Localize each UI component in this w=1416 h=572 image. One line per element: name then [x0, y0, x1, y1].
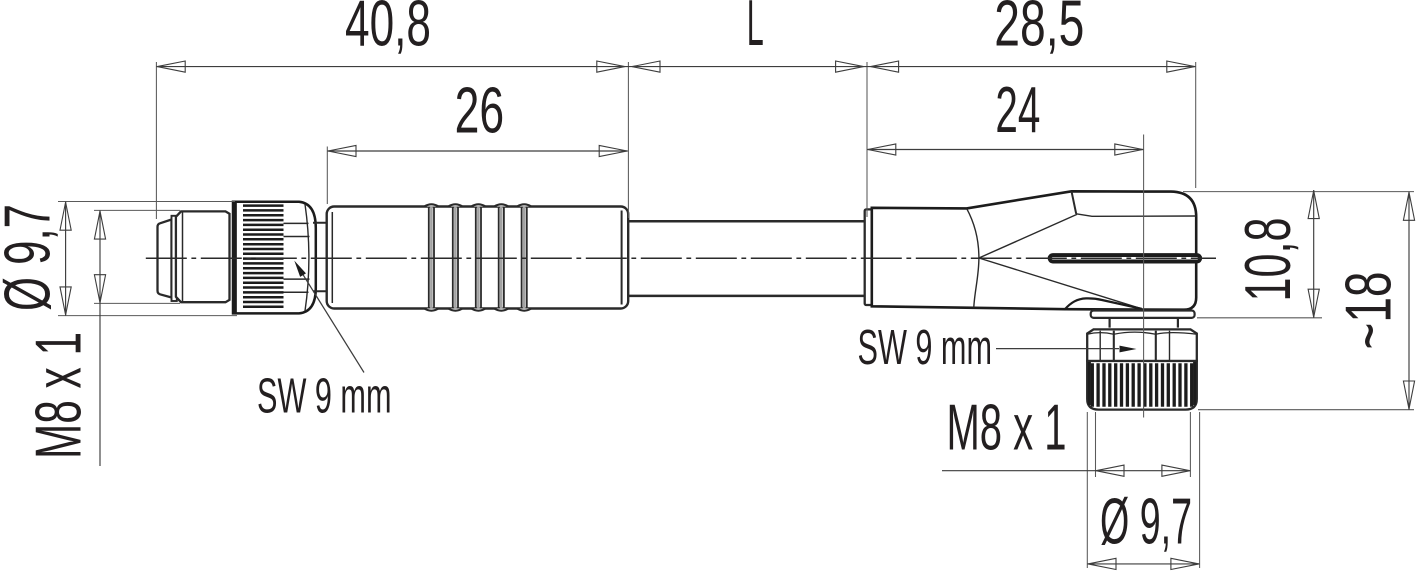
- svg-text:M8 x 1: M8 x 1: [23, 332, 95, 459]
- svg-text:40,8: 40,8: [345, 0, 431, 59]
- svg-text:24: 24: [995, 74, 1040, 146]
- svg-text:Ø 9,7: Ø 9,7: [1100, 485, 1192, 557]
- svg-text:L: L: [747, 0, 764, 59]
- svg-text:28,5: 28,5: [994, 0, 1084, 59]
- svg-text:10,8: 10,8: [1232, 218, 1304, 302]
- svg-text:M8 x 1: M8 x 1: [947, 391, 1067, 463]
- svg-text:SW 9 mm: SW 9 mm: [257, 368, 392, 423]
- svg-text:SW 9 mm: SW 9 mm: [858, 320, 993, 375]
- svg-text:Ø 9,7: Ø 9,7: [0, 204, 64, 311]
- svg-text:26: 26: [455, 74, 505, 146]
- svg-text:~18: ~18: [1333, 272, 1405, 350]
